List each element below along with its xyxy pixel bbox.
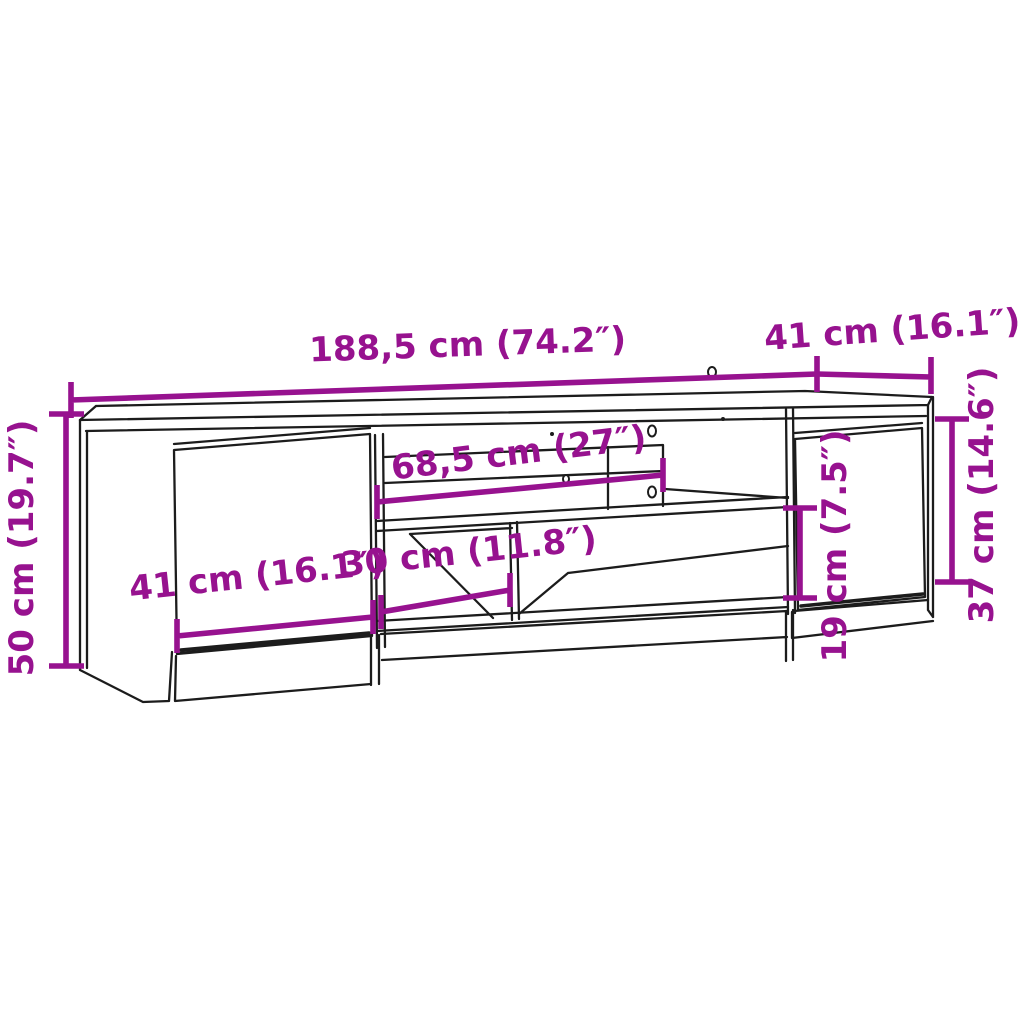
- dim-line-overall-height: [49, 414, 84, 666]
- dim-label-depth: 41 cm (16.1″): [763, 301, 1022, 359]
- dim-line-depth: [817, 357, 931, 394]
- dim-label-overall-width: 188,5 cm (74.2″): [309, 319, 627, 370]
- dim-middle-shelf-width: 68,5 cm (27″): [377, 418, 663, 519]
- dim-open-compartment-width: 30 cm (11.8″): [339, 519, 599, 629]
- screw-hole-dot: [721, 417, 725, 421]
- dim-door-height: 37 cm (14.6″): [935, 367, 1002, 624]
- dim-label-overall-height: 50 cm (19.7″): [2, 420, 42, 677]
- tv-stand-dimension-diagram: 188,5 cm (74.2″) 41 cm (16.1″) 50 cm (19…: [0, 0, 1024, 1024]
- cable-hole-icon: [648, 426, 656, 437]
- dim-label-door-height: 37 cm (14.6″): [962, 367, 1002, 624]
- diagram-canvas: 188,5 cm (74.2″) 41 cm (16.1″) 50 cm (19…: [0, 0, 1024, 1024]
- dim-label-open-compartment-width: 30 cm (11.8″): [339, 519, 599, 586]
- dim-overall-height: 50 cm (19.7″): [2, 414, 84, 676]
- dim-label-open-compartment-height: 19 cm (7.5″): [815, 429, 855, 662]
- cable-hole-icon: [648, 487, 656, 498]
- left-side-panel: [80, 420, 172, 702]
- right-side-panel: [928, 397, 933, 617]
